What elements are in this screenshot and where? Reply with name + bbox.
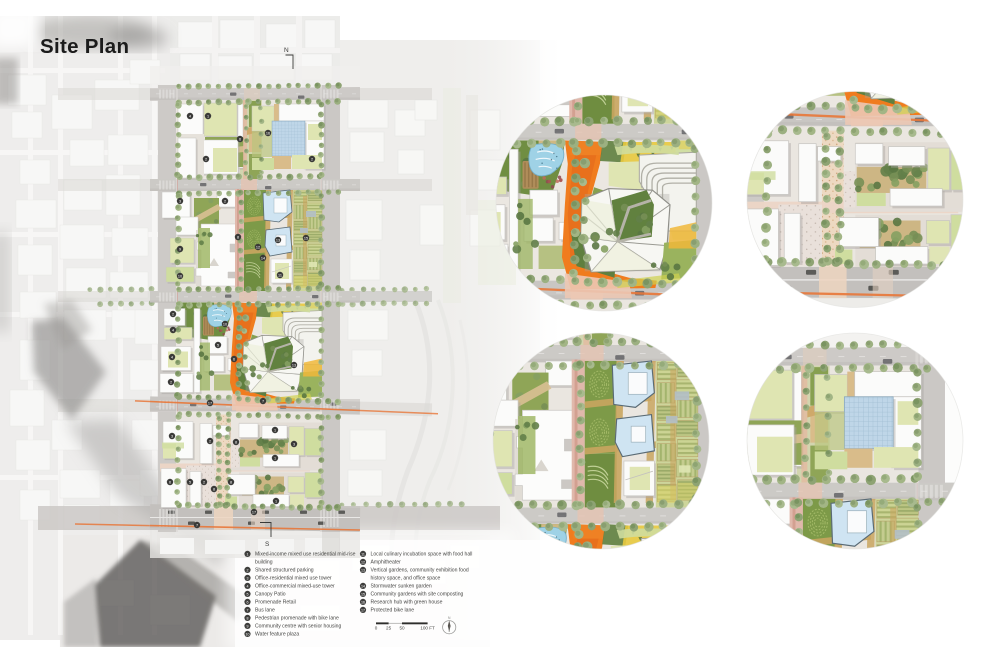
svg-text:12: 12	[256, 245, 260, 249]
svg-text:Office-residential mixed use t: Office-residential mixed use tower	[255, 576, 332, 582]
svg-text:Site Plan: Site Plan	[40, 35, 129, 58]
svg-text:4: 4	[189, 114, 191, 118]
svg-text:Pedestrian promenade with bike: Pedestrian promenade with bike lane	[255, 616, 339, 622]
svg-text:Stormwater sunken garden: Stormwater sunken garden	[371, 584, 432, 590]
svg-text:Water feature plaza: Water feature plaza	[255, 632, 299, 638]
svg-text:7: 7	[247, 608, 249, 612]
svg-text:2: 2	[170, 380, 172, 384]
svg-text:50: 50	[399, 626, 405, 631]
svg-text:1: 1	[275, 499, 277, 503]
svg-text:10: 10	[223, 322, 227, 326]
svg-text:17: 17	[252, 510, 256, 514]
svg-text:6: 6	[233, 357, 235, 361]
svg-text:12: 12	[361, 560, 365, 564]
svg-text:100 FT: 100 FT	[420, 626, 435, 631]
svg-text:Office-commercial mixed-use to: Office-commercial mixed-use tower	[255, 584, 335, 590]
svg-text:3: 3	[179, 199, 181, 203]
svg-text:4: 4	[171, 355, 173, 359]
svg-text:2: 2	[209, 439, 211, 443]
svg-text:3: 3	[171, 434, 173, 438]
svg-text:0: 0	[375, 626, 378, 631]
svg-text:10: 10	[246, 632, 250, 636]
svg-text:15: 15	[361, 592, 365, 596]
svg-text:14: 14	[261, 256, 265, 260]
svg-text:8: 8	[235, 440, 237, 444]
svg-text:8: 8	[247, 616, 249, 620]
svg-text:S: S	[265, 541, 270, 548]
svg-text:N: N	[284, 47, 289, 54]
svg-text:13: 13	[292, 363, 296, 367]
svg-text:Shared structured parking: Shared structured parking	[255, 568, 314, 574]
svg-text:13: 13	[276, 238, 280, 242]
svg-text:8: 8	[237, 235, 239, 239]
svg-text:2: 2	[172, 312, 174, 316]
svg-text:1: 1	[274, 428, 276, 432]
svg-text:7: 7	[262, 399, 264, 403]
svg-text:14: 14	[361, 584, 365, 588]
svg-text:6: 6	[169, 480, 171, 484]
svg-text:17: 17	[361, 608, 365, 612]
svg-text:9: 9	[179, 247, 181, 251]
svg-text:Vertical gardens, community ex: Vertical gardens, community exhibition f…	[371, 568, 469, 574]
svg-text:10: 10	[178, 274, 182, 278]
svg-text:Local culinary incubation spac: Local culinary incubation space with foo…	[371, 552, 473, 558]
svg-text:7: 7	[196, 523, 198, 527]
svg-text:Promenade Retail: Promenade Retail	[255, 600, 296, 606]
svg-text:N: N	[448, 616, 451, 620]
svg-text:17: 17	[208, 401, 212, 405]
svg-text:5: 5	[247, 592, 249, 596]
svg-text:4: 4	[247, 584, 249, 588]
svg-text:5: 5	[217, 343, 219, 347]
svg-text:5: 5	[189, 480, 191, 484]
svg-text:Research hub with green house: Research hub with green house	[371, 600, 443, 606]
svg-text:Mixed-income mixed use residen: Mixed-income mixed use residential mid-r…	[255, 552, 356, 558]
svg-text:8: 8	[230, 480, 232, 484]
svg-text:Protected bike lane: Protected bike lane	[371, 608, 415, 614]
svg-text:15: 15	[304, 236, 308, 240]
svg-text:2: 2	[224, 199, 226, 203]
svg-text:16: 16	[361, 600, 365, 604]
svg-text:Amphitheater: Amphitheater	[371, 560, 402, 566]
svg-text:3: 3	[247, 576, 249, 580]
svg-text:6: 6	[239, 137, 241, 141]
svg-text:11: 11	[278, 273, 282, 277]
svg-text:building: building	[255, 560, 273, 566]
svg-text:Bus lane: Bus lane	[255, 608, 275, 614]
svg-text:Community centre with senior h: Community centre with senior housing	[255, 624, 342, 630]
svg-text:Canopy Patio: Canopy Patio	[255, 592, 286, 598]
svg-text:2: 2	[247, 568, 249, 572]
svg-text:Community gardens with site co: Community gardens with site composting	[371, 592, 464, 598]
svg-text:3: 3	[293, 442, 295, 446]
svg-text:2: 2	[311, 157, 313, 161]
svg-text:4: 4	[172, 328, 174, 332]
svg-text:1: 1	[274, 456, 276, 460]
svg-text:2: 2	[203, 480, 205, 484]
svg-text:8: 8	[213, 487, 215, 491]
svg-text:9: 9	[247, 624, 249, 628]
svg-text:16: 16	[266, 131, 270, 135]
svg-text:1: 1	[207, 114, 209, 118]
svg-text:11: 11	[361, 552, 365, 556]
svg-text:history space, and office spac: history space, and office space	[371, 576, 441, 582]
svg-text:6: 6	[247, 600, 249, 604]
svg-text:1: 1	[247, 552, 249, 556]
svg-text:2: 2	[205, 157, 207, 161]
svg-text:13: 13	[361, 568, 365, 572]
svg-text:25: 25	[386, 626, 392, 631]
